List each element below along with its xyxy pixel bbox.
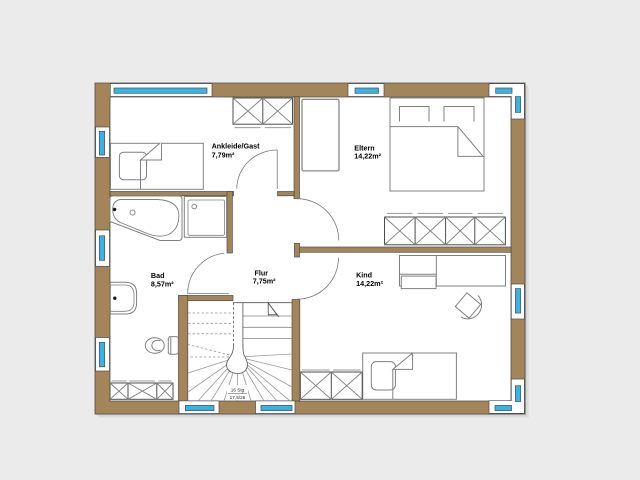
svg-text:16 Stg: 16 Stg bbox=[231, 388, 245, 393]
svg-text:17,5/26: 17,5/26 bbox=[230, 395, 246, 400]
svg-text:7,75m²: 7,75m² bbox=[253, 276, 276, 285]
svg-text:Ankleide/Gast: Ankleide/Gast bbox=[212, 142, 261, 151]
svg-text:8,57m²: 8,57m² bbox=[151, 280, 174, 289]
svg-text:14,22m²: 14,22m² bbox=[356, 279, 383, 288]
svg-text:7,79m²: 7,79m² bbox=[212, 150, 235, 159]
svg-text:14,22m²: 14,22m² bbox=[354, 152, 381, 161]
